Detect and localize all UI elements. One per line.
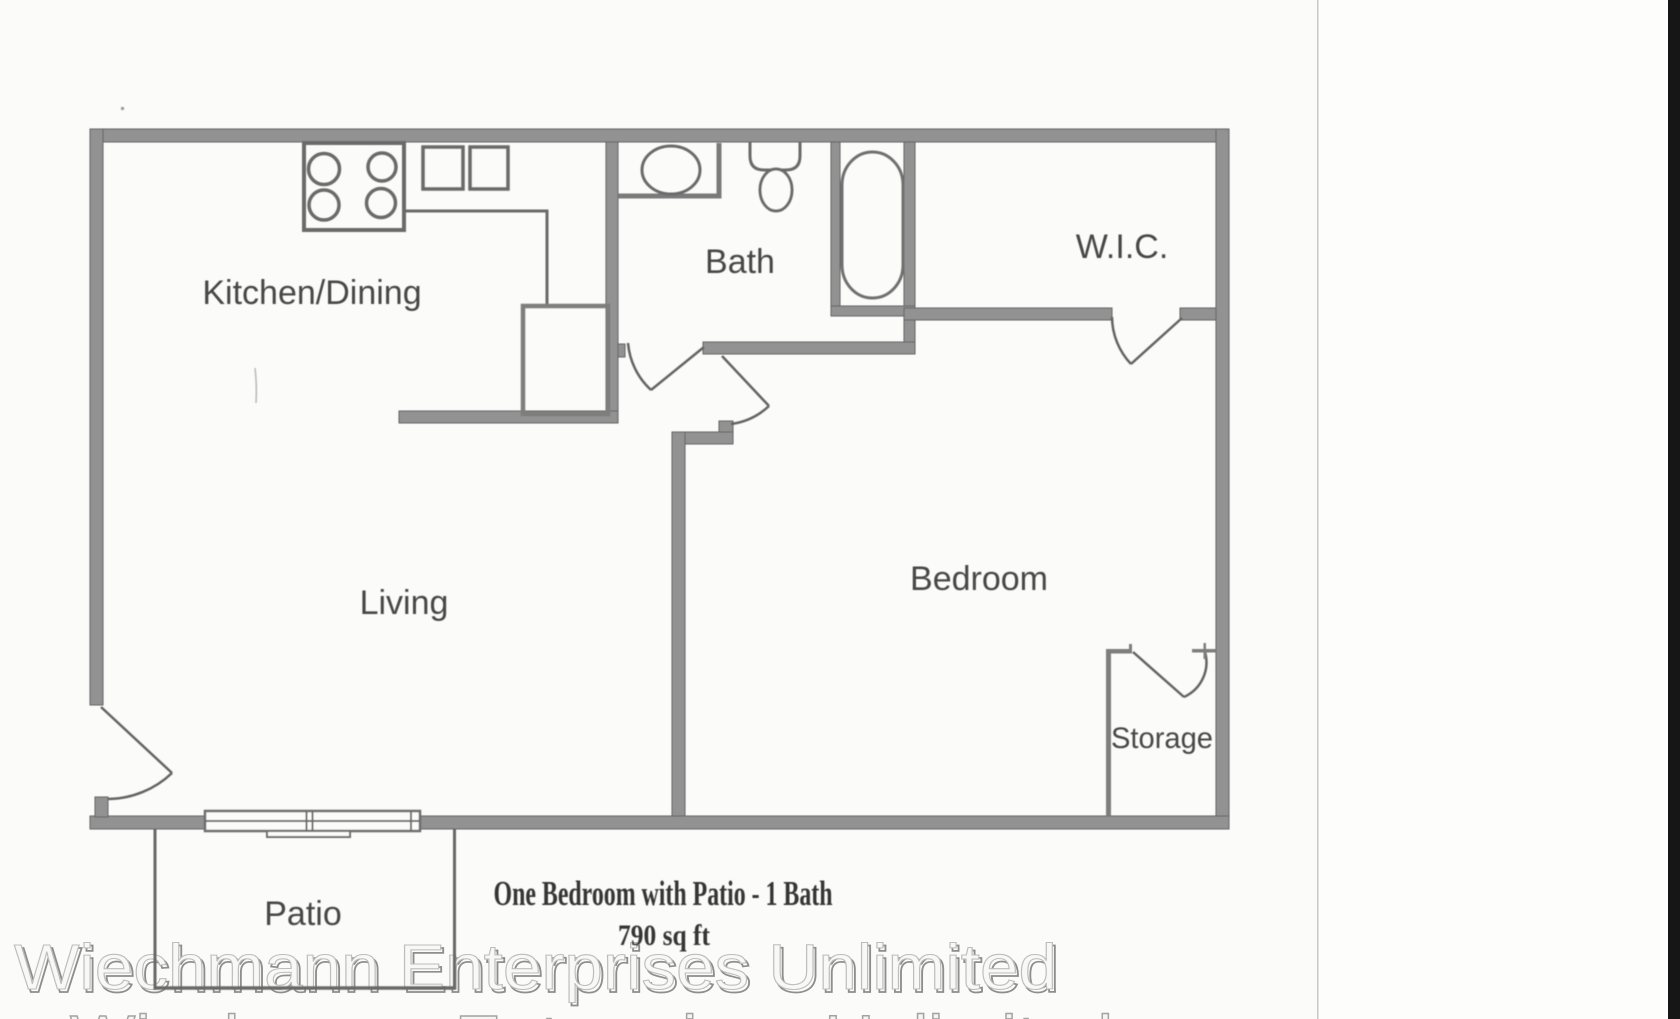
svg-text:Patio: Patio bbox=[264, 895, 342, 933]
svg-text:Bath: Bath bbox=[705, 243, 775, 281]
svg-text:790 sq ft: 790 sq ft bbox=[618, 919, 710, 952]
svg-text:W.I.C.: W.I.C. bbox=[1076, 228, 1169, 266]
svg-text:Living: Living bbox=[360, 584, 449, 622]
svg-text:Kitchen/Dining: Kitchen/Dining bbox=[202, 274, 421, 312]
svg-text:One Bedroom with Patio - 1 Bat: One Bedroom with Patio - 1 Bath bbox=[494, 874, 833, 913]
svg-text:Storage: Storage bbox=[1111, 722, 1213, 755]
svg-text:Bedroom: Bedroom bbox=[910, 560, 1048, 598]
svg-text:Wiechmann Enterprises Unlimite: Wiechmann Enterprises Unlimited bbox=[14, 931, 1057, 1003]
svg-text:Wiechmann Enterprises Unlimite: Wiechmann Enterprises Unlimited bbox=[70, 1002, 1113, 1019]
